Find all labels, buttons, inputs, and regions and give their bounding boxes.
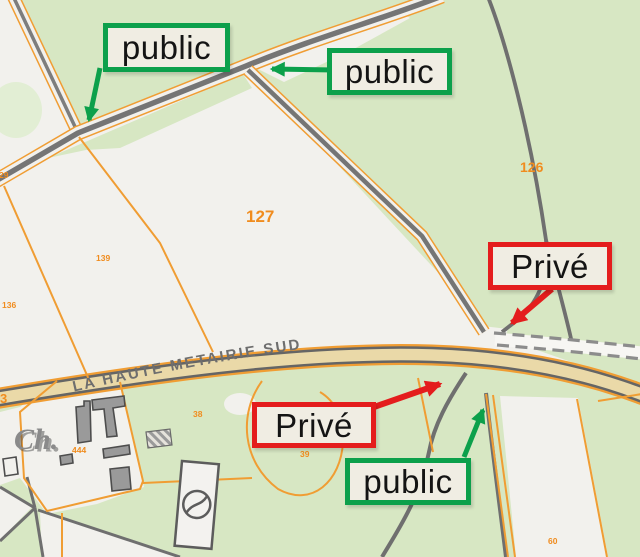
annotation-public-top-right: public — [327, 48, 452, 95]
public-arrow-top-right — [272, 69, 334, 70]
road-number-label: 3 — [0, 391, 7, 406]
annotation-label: public — [122, 31, 211, 64]
parcel-label-29: 29 — [0, 170, 9, 180]
annotation-label: public — [345, 55, 434, 88]
map-screenshot: Ch. Ch. LA HAUTE METAIRIE SUD 127 126 13… — [0, 0, 640, 557]
parcel-label-126: 126 — [520, 159, 544, 175]
building — [76, 401, 91, 443]
parcel-label-127: 127 — [246, 207, 274, 226]
annotation-prive-bottom: Privé — [252, 402, 376, 448]
annotation-prive-right: Privé — [488, 242, 612, 290]
building-outline — [3, 457, 18, 476]
parcel-label-136: 136 — [2, 300, 16, 310]
hatched-building — [146, 429, 172, 448]
building — [60, 454, 73, 465]
place-label: Ch. — [14, 423, 58, 456]
landmark-rectangle — [175, 461, 219, 549]
annotation-label: Privé — [511, 250, 589, 283]
parcel-label-38: 38 — [193, 409, 203, 419]
parcel-label-139: 139 — [96, 253, 110, 263]
parcel-label-60: 60 — [548, 536, 558, 546]
parcel-label-444: 444 — [72, 445, 86, 455]
parcel-label-39: 39 — [300, 449, 310, 459]
building — [110, 467, 131, 491]
annotation-label: Privé — [275, 409, 353, 442]
annotation-label: public — [363, 465, 452, 498]
annotation-public-bottom: public — [345, 458, 471, 505]
annotation-public-top-left: public — [103, 23, 230, 72]
